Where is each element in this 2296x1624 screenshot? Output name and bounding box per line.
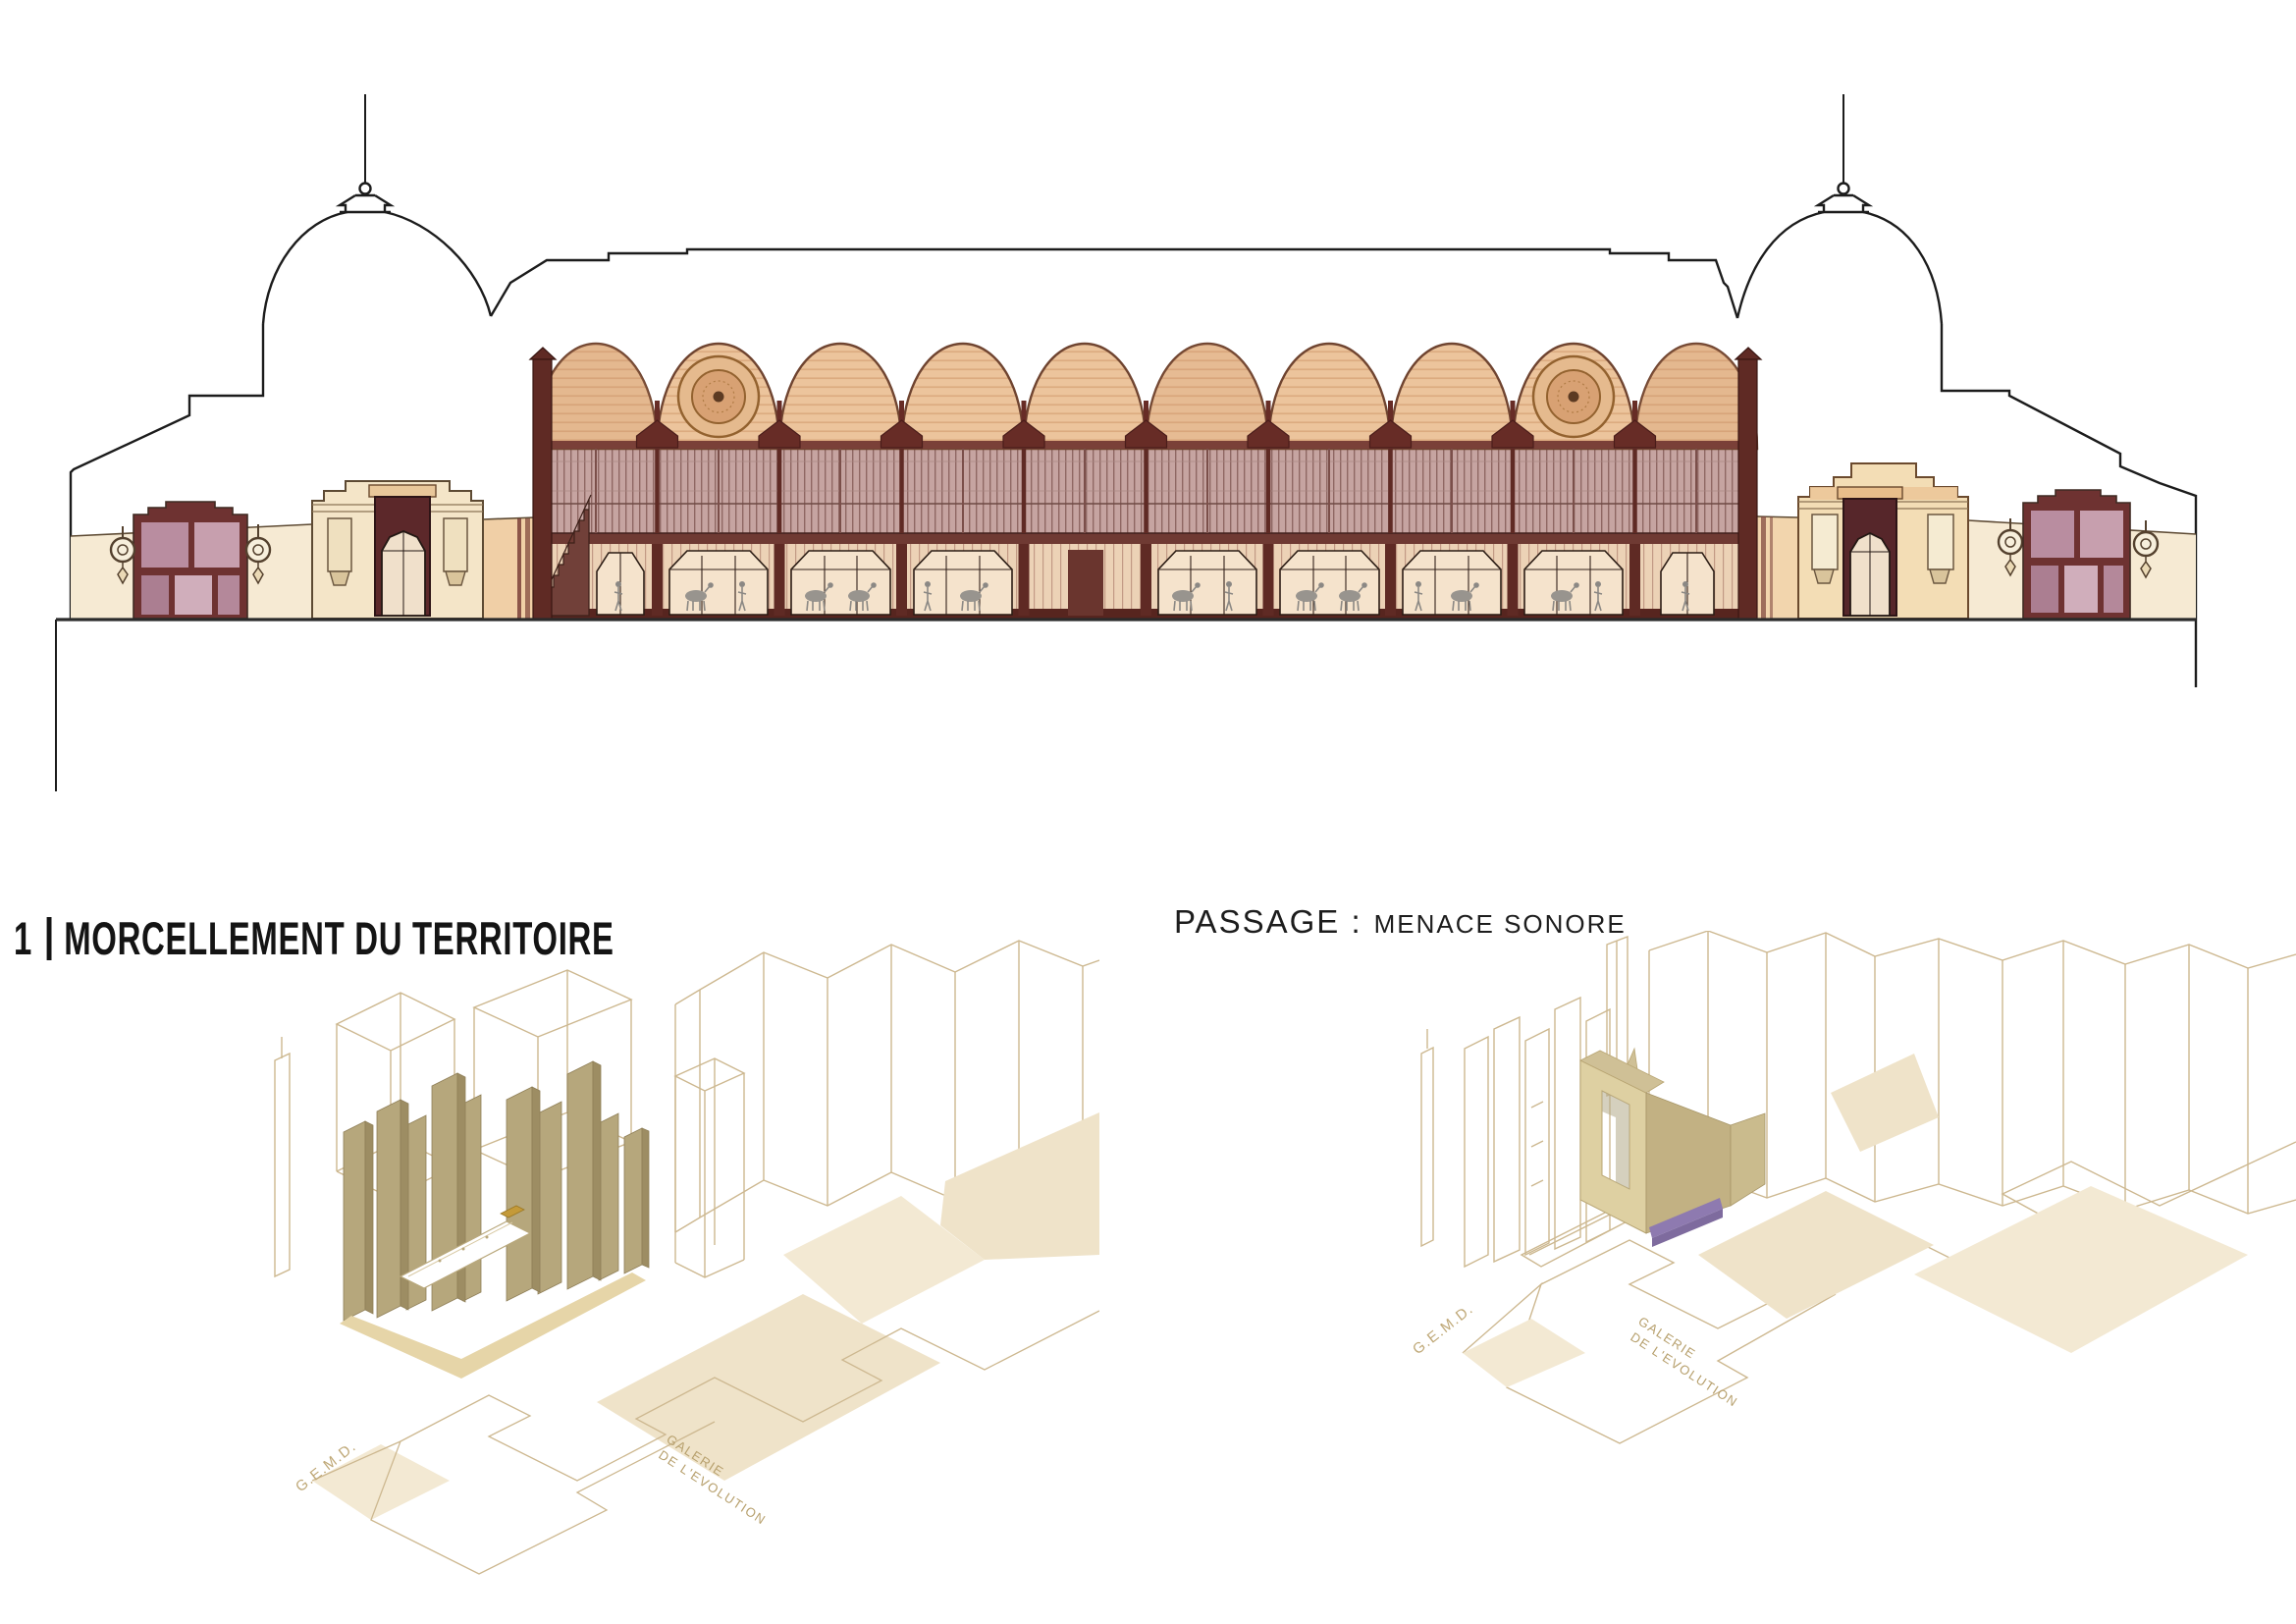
- left-window-bay: [133, 502, 247, 619]
- oculus-window: [678, 356, 759, 437]
- window-pane: [141, 522, 188, 568]
- window-pane: [175, 575, 212, 615]
- roofline: [491, 249, 1737, 318]
- oculus-window: [1533, 356, 1614, 437]
- central-opening: [1068, 550, 1103, 616]
- door-lintel: [1838, 487, 1902, 499]
- presentation-sheet: 1 MORCELLEMENT DU TERRITOIRE PASSAGE : M…: [0, 0, 2296, 1624]
- portal-reveal: [1602, 1091, 1629, 1189]
- dome-right-lantern: [1818, 195, 1869, 212]
- pilaster-panel: [1812, 514, 1838, 569]
- wall-streak: [1761, 516, 1766, 619]
- dome-left-ball: [360, 184, 371, 194]
- window-pane: [2031, 511, 2074, 558]
- pilaster-panel: [1928, 514, 1953, 569]
- gallery-section: [530, 344, 1761, 621]
- corbel: [330, 571, 349, 585]
- window-pane: [2064, 566, 2098, 613]
- corbel: [1814, 569, 1834, 583]
- dome-left-lantern: [340, 195, 391, 212]
- corbel: [446, 571, 465, 585]
- axon-left-terrace: [312, 1112, 1099, 1574]
- left-wing: [71, 481, 535, 619]
- dome-left-body: [263, 212, 491, 324]
- window-pane: [141, 575, 169, 615]
- building-section-drawing: [0, 0, 2296, 815]
- pilaster-panel: [328, 518, 351, 571]
- axon-right-portal-volume: [1580, 1049, 1765, 1247]
- diagram-1-number: 1: [14, 911, 31, 965]
- wall-streak: [1770, 516, 1773, 619]
- dome-right-ball: [1839, 184, 1849, 194]
- corbel: [1930, 569, 1949, 583]
- window-pane: [218, 575, 240, 615]
- window-pane: [2031, 566, 2058, 613]
- axon-left-slab-cluster: [340, 1061, 649, 1379]
- wall-streak: [517, 518, 521, 619]
- dome-right-body: [1737, 212, 1942, 324]
- door-lintel: [369, 485, 436, 497]
- window-pane: [194, 522, 240, 568]
- left-portal: [312, 481, 483, 619]
- window-pane: [2080, 511, 2123, 558]
- right-wing: [1757, 463, 2196, 619]
- right-window-bay: [2023, 490, 2130, 619]
- pilaster-panel: [444, 518, 467, 571]
- axon-right: G.E.M.D. GALERIE DE L'EVOLUTION: [1404, 931, 2296, 1624]
- balcony-band: [535, 533, 1757, 544]
- title-separator-bar: [47, 917, 52, 960]
- window-pane: [2104, 566, 2123, 613]
- diagram-2-label-primary: PASSAGE :: [1174, 903, 1362, 941]
- portal-side-wall-2: [1731, 1113, 1765, 1206]
- axon-left: G.E.M.D. GALERIE DE L'EVOLUTION: [253, 931, 1099, 1618]
- wall-streak: [525, 518, 530, 619]
- right-portal: [1798, 463, 1968, 619]
